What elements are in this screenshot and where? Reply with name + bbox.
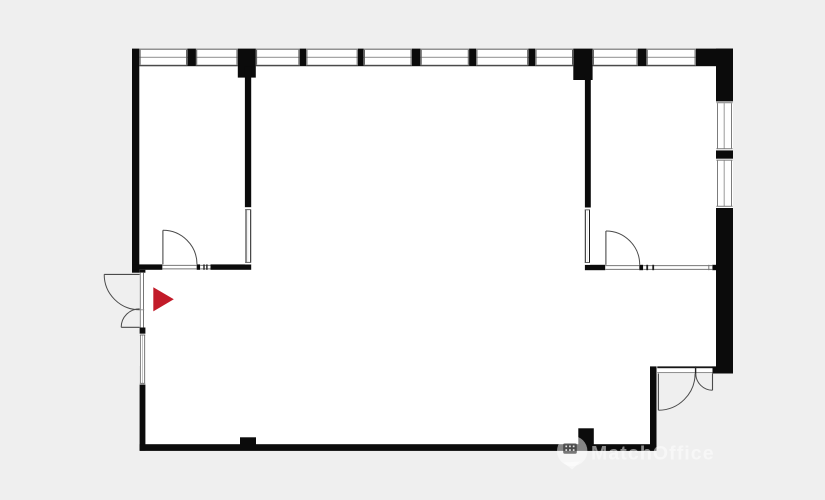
svg-text:MatchOffice: MatchOffice: [591, 442, 715, 464]
